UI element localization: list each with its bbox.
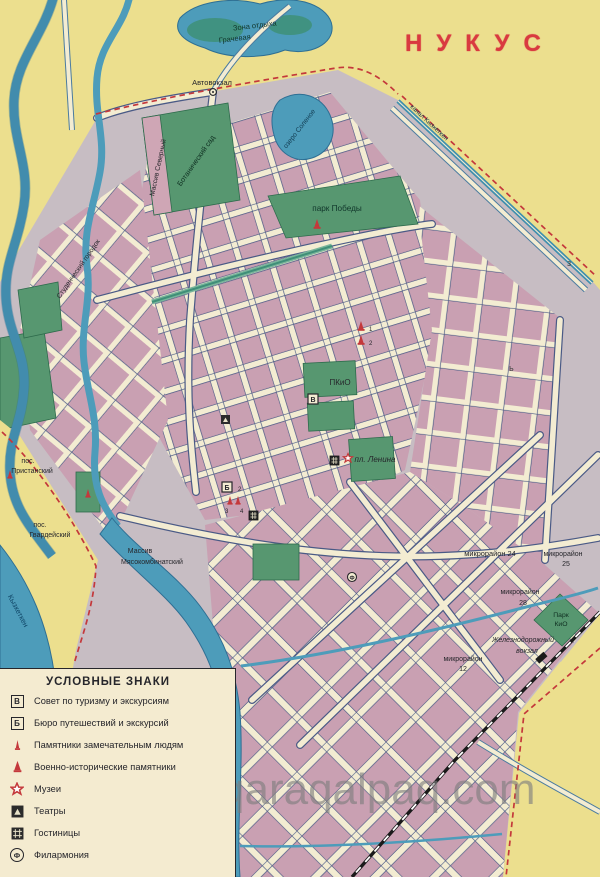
label-zhd-1: Железнодорожный [491,636,554,644]
page-title: НУКУС [405,30,595,58]
legend-item-label: Совет по туризму и экскурсиям [34,696,169,706]
legend-item-label: Памятники замечательным людям [34,740,183,750]
philharmonic-icon: Ф [9,847,25,863]
theatre-icon [9,803,25,819]
legend-item-label: Военно-исторические памятники [34,762,176,772]
label-gvardeysky-2: Гвардейский [30,531,71,539]
label-mkr25-1: микрорайон [543,550,582,558]
label-park-kio-1: Парк [553,612,568,619]
travel-bureau-icon: Б [9,715,25,731]
legend-item-theatres: Театры [0,800,235,822]
legend-item-label: Гостиницы [34,828,80,838]
label-pl-lenina: пл. Ленина [355,455,397,464]
hotel-icon [9,825,25,841]
grid-letter-z: з [567,258,571,268]
hotel-icon [330,456,339,465]
hotel-icon [249,511,258,520]
svg-text:Ф: Ф [349,576,354,582]
philharmonic-icon: Ф [348,573,357,583]
label-zhd-2: вокзал [516,648,538,655]
label-mkr24: микрорайон 24 [464,549,515,558]
legend-item-hotels: Гостиницы [0,822,235,844]
label-mkr28-1: микрорайон [500,588,539,596]
tourism-council-icon: В [308,394,318,404]
travel-bureau-icon: Б [222,482,232,492]
green-west-small [18,282,62,338]
svg-text:Б: Б [224,485,229,492]
grid-letter-b: ь [509,363,514,373]
label-pristansky-2: Пристанский [11,467,53,475]
label-park-pobedy: парк Победы [312,204,362,213]
pkio-park-2 [307,401,354,431]
legend-item-museums: Музеи [0,778,235,800]
legend-item-label: Бюро путешествий и экскурсий [34,718,169,728]
legend-item-travel-bureau: Б Бюро путешествий и экскурсий [0,712,235,734]
legend-item-philharmonic: Ф Филармония [0,844,235,866]
watermark: qaraqalpaq.com [220,765,600,815]
legend-item-label: Театры [34,806,65,816]
legend-item-label: Музеи [34,784,61,794]
museum-icon [9,781,25,797]
legend-title: УСЛОВНЫЕ ЗНАКИ [46,676,235,688]
label-mkr12-2: 12 [459,666,467,673]
label-avtovokzal: Автовокзал [192,78,232,87]
svg-text:В: В [310,397,315,404]
label-mkr25-2: 25 [562,561,570,568]
theatre-icon [221,415,230,424]
label-pristansky-1: пос. [21,458,34,465]
legend-item-tourism-council: В Совет по туризму и экскурсиям [0,690,235,712]
legend-item-war-monuments: Военно-исторические памятники [0,756,235,778]
green-south [253,544,299,580]
label-massiv-mk-2: Мясокомбинатский [121,558,183,566]
legend-item-monuments-people: Памятники замечательным людям [0,734,235,756]
label-mkr12-1: микрорайон [443,655,482,663]
nukus-city-map-page: В Б Ф Зона отдыха Грачевая Автовокзал Ма… [0,0,600,877]
label-gvardeysky-1: пос. [33,522,46,529]
people-monument-icon [9,737,25,753]
label-mkr28-2: 28 [519,600,527,607]
tourism-council-icon: В [9,693,25,709]
label-park-kio-2: КиО [554,621,567,628]
label-pkio: ПКиО [329,378,350,387]
legend-panel: УСЛОВНЫЕ ЗНАКИ В Совет по туризму и экск… [0,668,236,877]
war-monument-icon [9,759,25,775]
label-massiv-mk-1: Массив [128,548,153,555]
legend-item-label: Филармония [34,850,89,860]
